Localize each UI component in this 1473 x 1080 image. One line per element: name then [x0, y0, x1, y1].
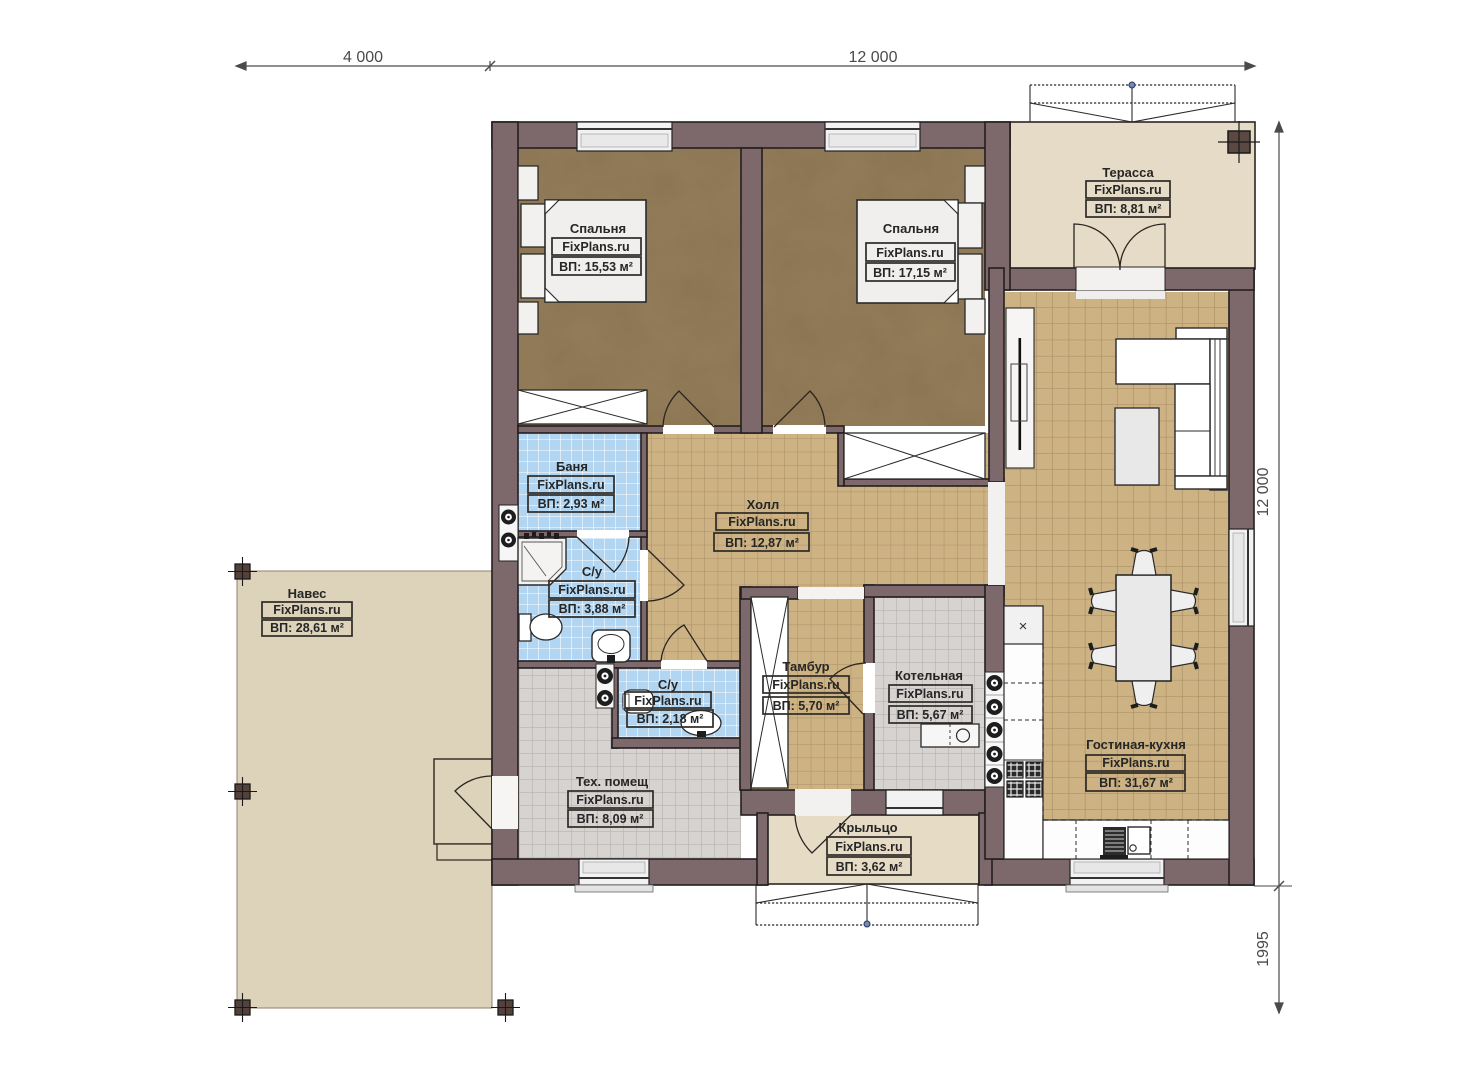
svg-text:Навес: Навес	[288, 586, 327, 601]
svg-text:FixPlans.ru: FixPlans.ru	[634, 694, 701, 708]
svg-text:×: ×	[1019, 618, 1028, 635]
svg-text:FixPlans.ru: FixPlans.ru	[558, 583, 625, 597]
svg-text:FixPlans.ru: FixPlans.ru	[896, 687, 963, 701]
svg-text:ВП: 5,67 м²: ВП: 5,67 м²	[897, 708, 964, 722]
svg-text:4 000: 4 000	[343, 49, 383, 66]
svg-text:ВП: 31,67 м²: ВП: 31,67 м²	[1099, 776, 1173, 790]
svg-text:Баня: Баня	[556, 459, 588, 474]
svg-text:Холл: Холл	[747, 497, 780, 512]
svg-text:Котельная: Котельная	[895, 668, 963, 683]
svg-text:ВП: 8,81 м²: ВП: 8,81 м²	[1095, 202, 1162, 216]
svg-text:Спальня: Спальня	[883, 221, 939, 236]
svg-text:С/у: С/у	[658, 677, 679, 692]
svg-text:1995: 1995	[1255, 931, 1272, 967]
svg-text:ВП: 5,70 м²: ВП: 5,70 м²	[773, 699, 840, 713]
svg-text:ВП: 2,18 м²: ВП: 2,18 м²	[637, 712, 704, 726]
svg-text:FixPlans.ru: FixPlans.ru	[273, 603, 340, 617]
svg-text:FixPlans.ru: FixPlans.ru	[876, 246, 943, 260]
svg-text:ВП: 28,61 м²: ВП: 28,61 м²	[270, 621, 344, 635]
svg-text:FixPlans.ru: FixPlans.ru	[537, 478, 604, 492]
svg-text:ВП: 15,53 м²: ВП: 15,53 м²	[559, 260, 633, 274]
svg-text:ВП: 3,88 м²: ВП: 3,88 м²	[559, 602, 626, 616]
svg-text:FixPlans.ru: FixPlans.ru	[1094, 183, 1161, 197]
svg-text:FixPlans.ru: FixPlans.ru	[562, 240, 629, 254]
svg-text:FixPlans.ru: FixPlans.ru	[772, 678, 839, 692]
svg-text:Крыльцо: Крыльцо	[838, 820, 897, 835]
svg-text:Тамбур: Тамбур	[782, 659, 829, 674]
svg-text:FixPlans.ru: FixPlans.ru	[1102, 756, 1169, 770]
svg-text:ВП: 2,93 м²: ВП: 2,93 м²	[538, 497, 605, 511]
svg-text:Спальня: Спальня	[570, 221, 626, 236]
svg-text:С/у: С/у	[582, 564, 603, 579]
svg-text:Тех. помещ: Тех. помещ	[576, 774, 648, 789]
svg-text:ВП: 12,87 м²: ВП: 12,87 м²	[725, 536, 799, 550]
svg-text:Терасса: Терасса	[1102, 165, 1154, 180]
svg-text:ВП: 17,15 м²: ВП: 17,15 м²	[873, 266, 947, 280]
svg-text:FixPlans.ru: FixPlans.ru	[728, 515, 795, 529]
svg-text:FixPlans.ru: FixPlans.ru	[576, 793, 643, 807]
svg-text:ВП: 8,09 м²: ВП: 8,09 м²	[577, 812, 644, 826]
svg-text:Гостиная-кухня: Гостиная-кухня	[1086, 737, 1186, 752]
svg-text:FixPlans.ru: FixPlans.ru	[835, 840, 902, 854]
svg-text:ВП: 3,62 м²: ВП: 3,62 м²	[836, 860, 903, 874]
svg-text:12 000: 12 000	[1255, 467, 1272, 516]
svg-text:12 000: 12 000	[849, 49, 898, 66]
